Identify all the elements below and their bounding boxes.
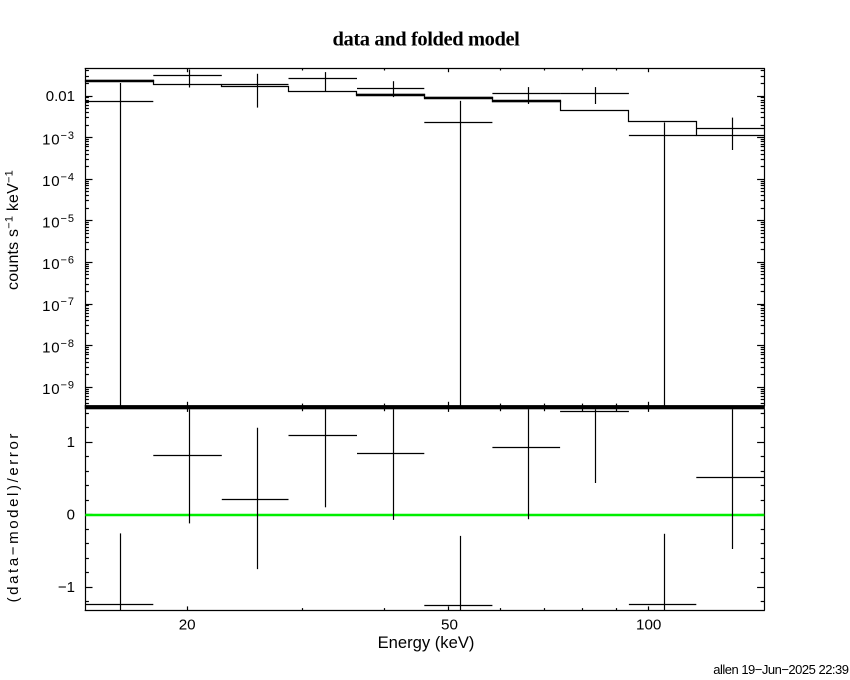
svg-text:0.01: 0.01 — [46, 88, 75, 105]
svg-text:1: 1 — [67, 434, 75, 451]
svg-text:Energy (keV): Energy (keV) — [378, 633, 475, 652]
svg-text:20: 20 — [179, 617, 196, 634]
svg-text:(data−model)/error: (data−model)/error — [5, 431, 22, 602]
svg-text:counts s−1 keV−1: counts s−1 keV−1 — [4, 170, 23, 290]
svg-text:allen 19−Jun−2025 22:39: allen 19−Jun−2025 22:39 — [713, 662, 849, 677]
svg-text:0: 0 — [67, 507, 75, 524]
svg-text:−1: −1 — [58, 579, 75, 596]
svg-text:data and folded model: data and folded model — [333, 28, 521, 50]
svg-text:50: 50 — [441, 617, 458, 634]
svg-text:100: 100 — [636, 617, 661, 634]
